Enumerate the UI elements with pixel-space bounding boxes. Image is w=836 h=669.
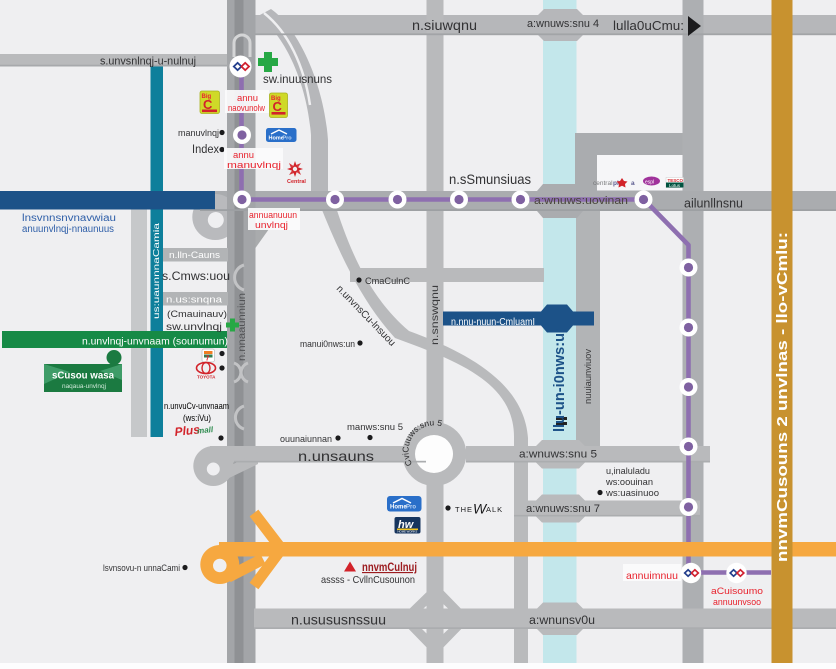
svg-text:a:wnuws:snu 4: a:wnuws:snu 4: [527, 18, 599, 30]
svg-text:manuvlnqj: manuvlnqj: [227, 160, 281, 170]
svg-text:Lotus: Lotus: [669, 183, 681, 188]
svg-text:nuuiaunviuov: nuuiaunviuov: [583, 348, 593, 404]
svg-text:s.Cmws:uou: s.Cmws:uou: [162, 269, 230, 283]
svg-text:unvlnqj: unvlnqj: [255, 220, 288, 230]
svg-text:n.siuwqnu: n.siuwqnu: [412, 17, 477, 33]
svg-text:n.nnaaunniun: n.nnaaunniun: [236, 293, 248, 361]
svg-text:llu-un-i0nws:un: llu-un-i0nws:un: [551, 324, 568, 432]
svg-text:n.unsauns: n.unsauns: [298, 448, 374, 464]
svg-text:n.lln-Cauns: n.lln-Cauns: [169, 250, 221, 260]
svg-text:mall: mall: [197, 425, 215, 436]
svg-text:n.snswqnu: n.snswqnu: [429, 285, 441, 345]
svg-text:lulla0uCmu:: lulla0uCmu:: [613, 18, 684, 33]
svg-text:nnvmCulnuj: nnvmCulnuj: [362, 562, 417, 574]
svg-text:Index: Index: [192, 144, 219, 156]
svg-text:nnvmCusouns 2 unvlnas - llo-vC: nnvmCusouns 2 unvlnas - llo-vCmlu:: [774, 232, 791, 562]
svg-text:annu: annu: [237, 93, 258, 103]
svg-text:manws:snu 5: manws:snu 5: [347, 422, 403, 433]
svg-text:n.usususnssuu: n.usususnssuu: [291, 613, 386, 628]
svg-text:n.us:snqna: n.us:snqna: [166, 295, 222, 305]
svg-text:TOYOTA: TOYOTA: [197, 375, 216, 380]
svg-text:us:uaunnnaCamia: us:uaunnnaCamia: [152, 222, 161, 319]
svg-text:annu: annu: [233, 150, 254, 160]
svg-text:assss - CvllnCusounon: assss - CvllnCusounon: [321, 574, 415, 586]
svg-text:s.unvsnlnqj-u-nulnuj: s.unvsnlnqj-u-nulnuj: [100, 56, 196, 68]
svg-text:a:wnunsv0u: a:wnunsv0u: [529, 615, 595, 627]
svg-text:naqaua-unvlnqj: naqaua-unvlnqj: [62, 383, 106, 390]
svg-text:THE: THE: [455, 505, 473, 514]
svg-text:HOME WORKS: HOME WORKS: [398, 530, 418, 534]
svg-text:Central: Central: [287, 179, 306, 185]
svg-text:sCusou wasa: sCusou wasa: [52, 370, 114, 382]
svg-text:ws:oouinan: ws:oouinan: [605, 477, 653, 488]
svg-text:a:wnuws:snu 5: a:wnuws:snu 5: [519, 449, 597, 461]
svg-text:ouunaiunnan: ouunaiunnan: [280, 434, 332, 445]
svg-text:n.unvuCv-unvnaam: n.unvuCv-unvnaam: [164, 401, 229, 412]
svg-text:sw.inuusnuns: sw.inuusnuns: [263, 72, 332, 86]
svg-text:a:wnuws:uovinan: a:wnuws:uovinan: [534, 195, 628, 207]
svg-text:lsvnsovu-n unnaCami: lsvnsovu-n unnaCami: [103, 563, 180, 574]
svg-text:ailunllnsnu: ailunllnsnu: [684, 196, 743, 211]
svg-text:n.unvlnqj-unvnaam (sounumun): n.unvlnqj-unvnaam (sounumun): [82, 336, 228, 348]
svg-text:ALK: ALK: [486, 505, 503, 514]
svg-text:manuvlnqj: manuvlnqj: [178, 128, 219, 138]
svg-text:espl: espl: [645, 180, 654, 186]
svg-text:annuanuuun: annuanuuun: [249, 210, 297, 220]
svg-text:lnsvnnsnvnavwiau: lnsvnnsnvnavwiau: [22, 213, 116, 224]
svg-text:manui0nws:un: manui0nws:un: [300, 339, 355, 350]
svg-text:(Cmauinauv): (Cmauinauv): [167, 309, 227, 320]
svg-text:naovunolw: naovunolw: [228, 103, 265, 113]
svg-text:Pro: Pro: [283, 136, 293, 142]
svg-text:ws:uasinuoo: ws:uasinuoo: [605, 488, 659, 499]
svg-text:C: C: [273, 99, 283, 114]
svg-text:Home: Home: [269, 136, 284, 142]
svg-text:7: 7: [206, 356, 210, 363]
svg-text:a:wnuws:snu 7: a:wnuws:snu 7: [526, 503, 600, 515]
svg-text:Home: Home: [390, 505, 407, 511]
svg-text:Pro: Pro: [406, 505, 416, 511]
svg-text:annuimnuu: annuimnuu: [626, 570, 678, 582]
svg-text:sw.unvlnqj: sw.unvlnqj: [166, 322, 222, 333]
svg-text:u,inaluladu: u,inaluladu: [606, 466, 650, 477]
svg-text:anuunvlnqj-nnaunuus: anuunvlnqj-nnaunuus: [22, 224, 114, 235]
svg-text:n.sSmunsiuas: n.sSmunsiuas: [449, 171, 531, 187]
svg-text:aCuisoumo: aCuisoumo: [711, 586, 763, 597]
svg-text:n.nnu-nuun-CmluamI: n.nnu-nuun-CmluamI: [451, 317, 535, 328]
svg-text:annuunvsoo: annuunvsoo: [713, 597, 761, 608]
svg-text:a: a: [631, 180, 635, 187]
svg-text:central: central: [593, 180, 613, 187]
svg-text:CmaCulnC: CmaCulnC: [365, 276, 410, 287]
